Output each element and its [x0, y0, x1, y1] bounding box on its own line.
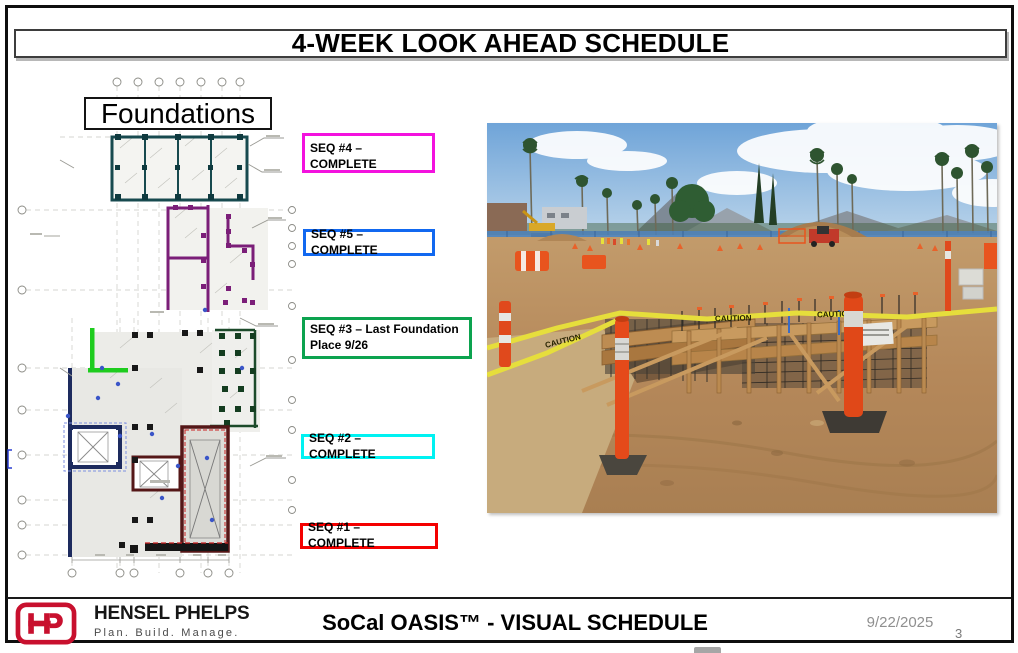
- footer-date: 9/22/2025: [850, 614, 950, 631]
- seq-5-text: SEQ #5 – COMPLETE: [311, 227, 427, 258]
- caution-tape-text: CAUTION: [715, 314, 752, 324]
- seq-1-callout: SEQ #1 – COMPLETE: [300, 523, 438, 549]
- seq-2-callout: SEQ #2 – COMPLETE: [301, 434, 435, 459]
- seq-2-text: SEQ #2 – COMPLETE: [309, 431, 427, 462]
- slide-title: 4-WEEK LOOK AHEAD SCHEDULE: [292, 28, 730, 59]
- seq-5-callout: SEQ #5 – COMPLETE: [303, 229, 435, 256]
- footer-divider: [7, 597, 1011, 599]
- foundation-plan-drawing: [0, 68, 300, 598]
- seq-3-text-line1: SEQ #3 – Last Foundation: [310, 322, 464, 338]
- company-block: HENSEL PHELPS Plan. Build. Manage.: [94, 603, 249, 639]
- company-tagline: Plan. Build. Manage.: [94, 627, 249, 639]
- site-photo-illustration: CAUTION CAUTION CAUTION: [487, 123, 997, 513]
- slide-scroll-handle[interactable]: [694, 647, 721, 653]
- slide-title-box: 4-WEEK LOOK AHEAD SCHEDULE: [14, 29, 1007, 58]
- company-name: HENSEL PHELPS: [94, 603, 249, 625]
- page-number: 3: [955, 626, 962, 641]
- seq-4-callout: SEQ #4 – COMPLETE: [302, 133, 435, 173]
- slide: 4-WEEK LOOK AHEAD SCHEDULE: [0, 0, 1018, 653]
- plan-dimension-line: [72, 557, 229, 563]
- seq-3-callout: SEQ #3 – Last Foundation Place 9/26: [302, 317, 472, 359]
- plan-title-label: Foundations: [84, 97, 272, 130]
- seq-4-text: SEQ #4 – COMPLETE: [310, 141, 427, 172]
- schedule-title: SoCal OASIS™ - VISUAL SCHEDULE: [295, 610, 735, 636]
- seq-3-text-line2: Place 9/26: [310, 338, 464, 354]
- site-photo: CAUTION CAUTION CAUTION: [487, 123, 997, 513]
- seq-1-text: SEQ #1 – COMPLETE: [308, 520, 430, 551]
- foundation-plan: [0, 68, 300, 598]
- hensel-phelps-logo-icon: [14, 602, 78, 645]
